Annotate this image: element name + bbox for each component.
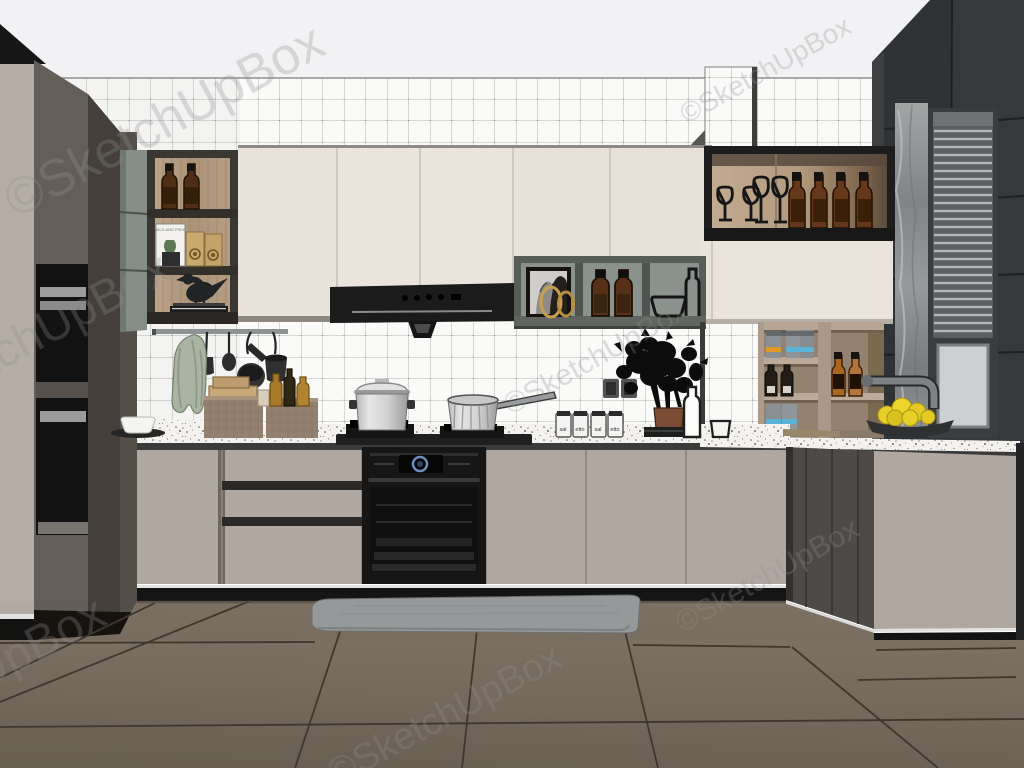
svg-text:sal: sal bbox=[594, 427, 601, 433]
svg-text:sal: sal bbox=[559, 427, 566, 433]
svg-text:etto: etto bbox=[610, 427, 619, 433]
svg-text:etto: etto bbox=[575, 427, 584, 433]
svg-text:WILD AND FREE: WILD AND FREE bbox=[154, 227, 185, 232]
